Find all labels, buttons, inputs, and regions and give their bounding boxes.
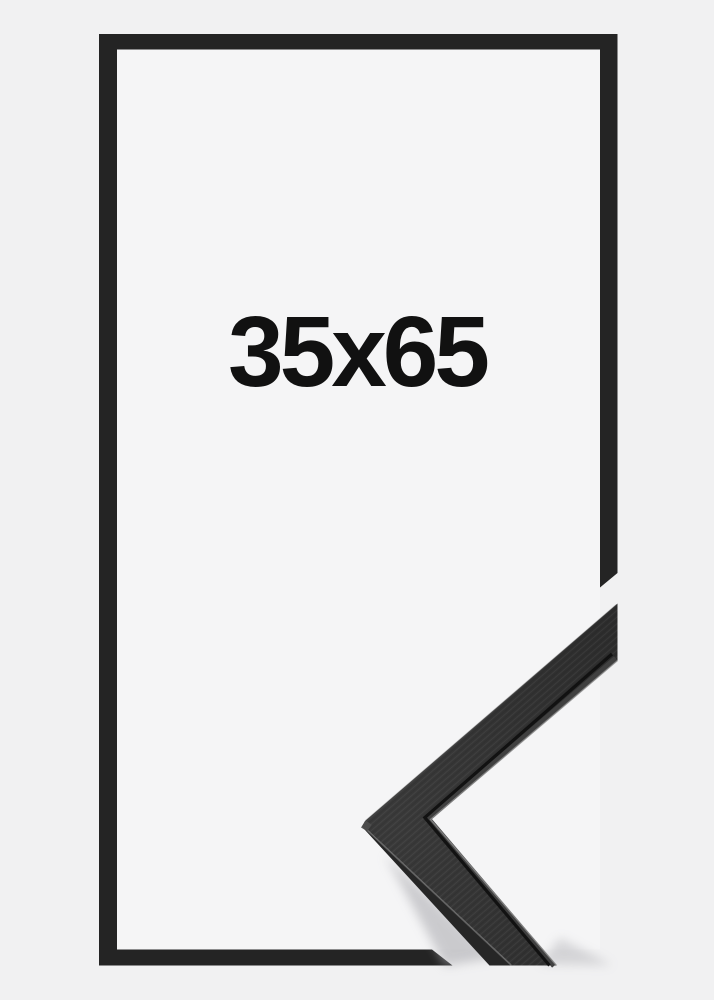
product-image: 35x65	[0, 0, 714, 1000]
frame-size-label: 35x65	[228, 295, 486, 410]
frame-product-graphic	[0, 0, 714, 1000]
frame-interior	[117, 50, 600, 950]
